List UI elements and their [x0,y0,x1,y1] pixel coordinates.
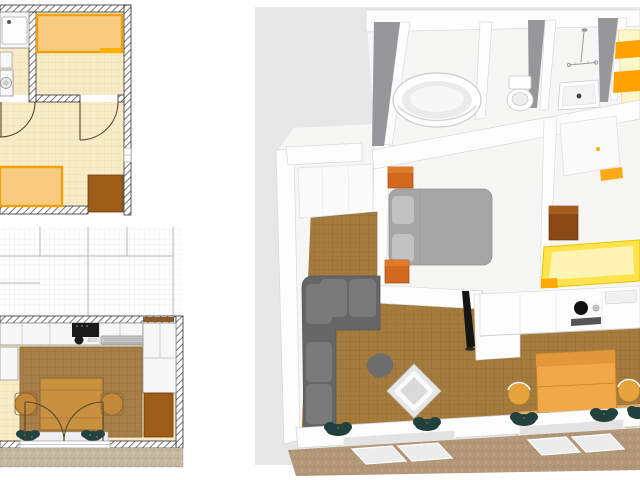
closet[interactable] [298,164,373,218]
shower-tray[interactable] [558,80,600,110]
wall-mid-horizontal-right[interactable] [118,95,124,102]
double-bed[interactable] [37,15,122,53]
wall-living-top [286,143,362,165]
chair-left[interactable] [508,383,530,405]
stove[interactable] [72,323,99,337]
wall-right[interactable] [124,5,131,215]
chair-left[interactable] [15,393,37,415]
panel-3d-view[interactable] [255,7,640,476]
chair-right[interactable] [618,380,640,402]
floorplan-workspace [0,0,640,480]
floorplan-canvas [0,0,640,480]
bathtub[interactable] [393,73,481,127]
wall-top[interactable] [0,5,131,12]
lintel [143,317,174,322]
pillow [392,234,414,262]
wardrobe[interactable] [88,175,123,212]
wood-nightstand[interactable] [549,206,578,240]
single-bed[interactable] [0,167,62,206]
kitchen-sink[interactable] [605,290,637,304]
toilet[interactable] [507,76,533,111]
panel-plan-2d-upper[interactable] [0,5,131,215]
panel-plan-2d-lower[interactable] [0,227,183,467]
dining-table[interactable] [40,378,103,430]
washing-machine[interactable] [0,70,13,96]
nightstand-bottom[interactable] [385,260,409,283]
cabinet-column[interactable] [143,323,176,393]
terrace-gravel [0,448,183,467]
pillow [392,196,414,224]
pillow-orange [613,70,640,93]
counter-small[interactable] [0,52,12,68]
counter-accessory [88,338,97,342]
upper-floor-grid [0,227,182,316]
sink[interactable] [75,336,84,345]
sink-counter[interactable] [0,12,29,48]
open-door[interactable] [560,116,620,176]
chair-right[interactable] [101,393,123,415]
wall-mid-vertical[interactable] [29,12,36,102]
window[interactable] [124,148,131,162]
master-bed[interactable] [389,189,492,265]
wall-right[interactable] [176,316,183,448]
counter-left[interactable] [0,347,18,380]
yellow-bed[interactable] [541,240,640,288]
pillow-orange [615,40,640,59]
faucet-icon [7,20,11,24]
wall-mid-horizontal[interactable] [36,95,80,102]
radiator[interactable] [101,336,146,344]
wardrobe-brown[interactable] [144,393,173,437]
door-handle-icon [596,147,600,151]
nightstand-top[interactable] [388,167,413,188]
